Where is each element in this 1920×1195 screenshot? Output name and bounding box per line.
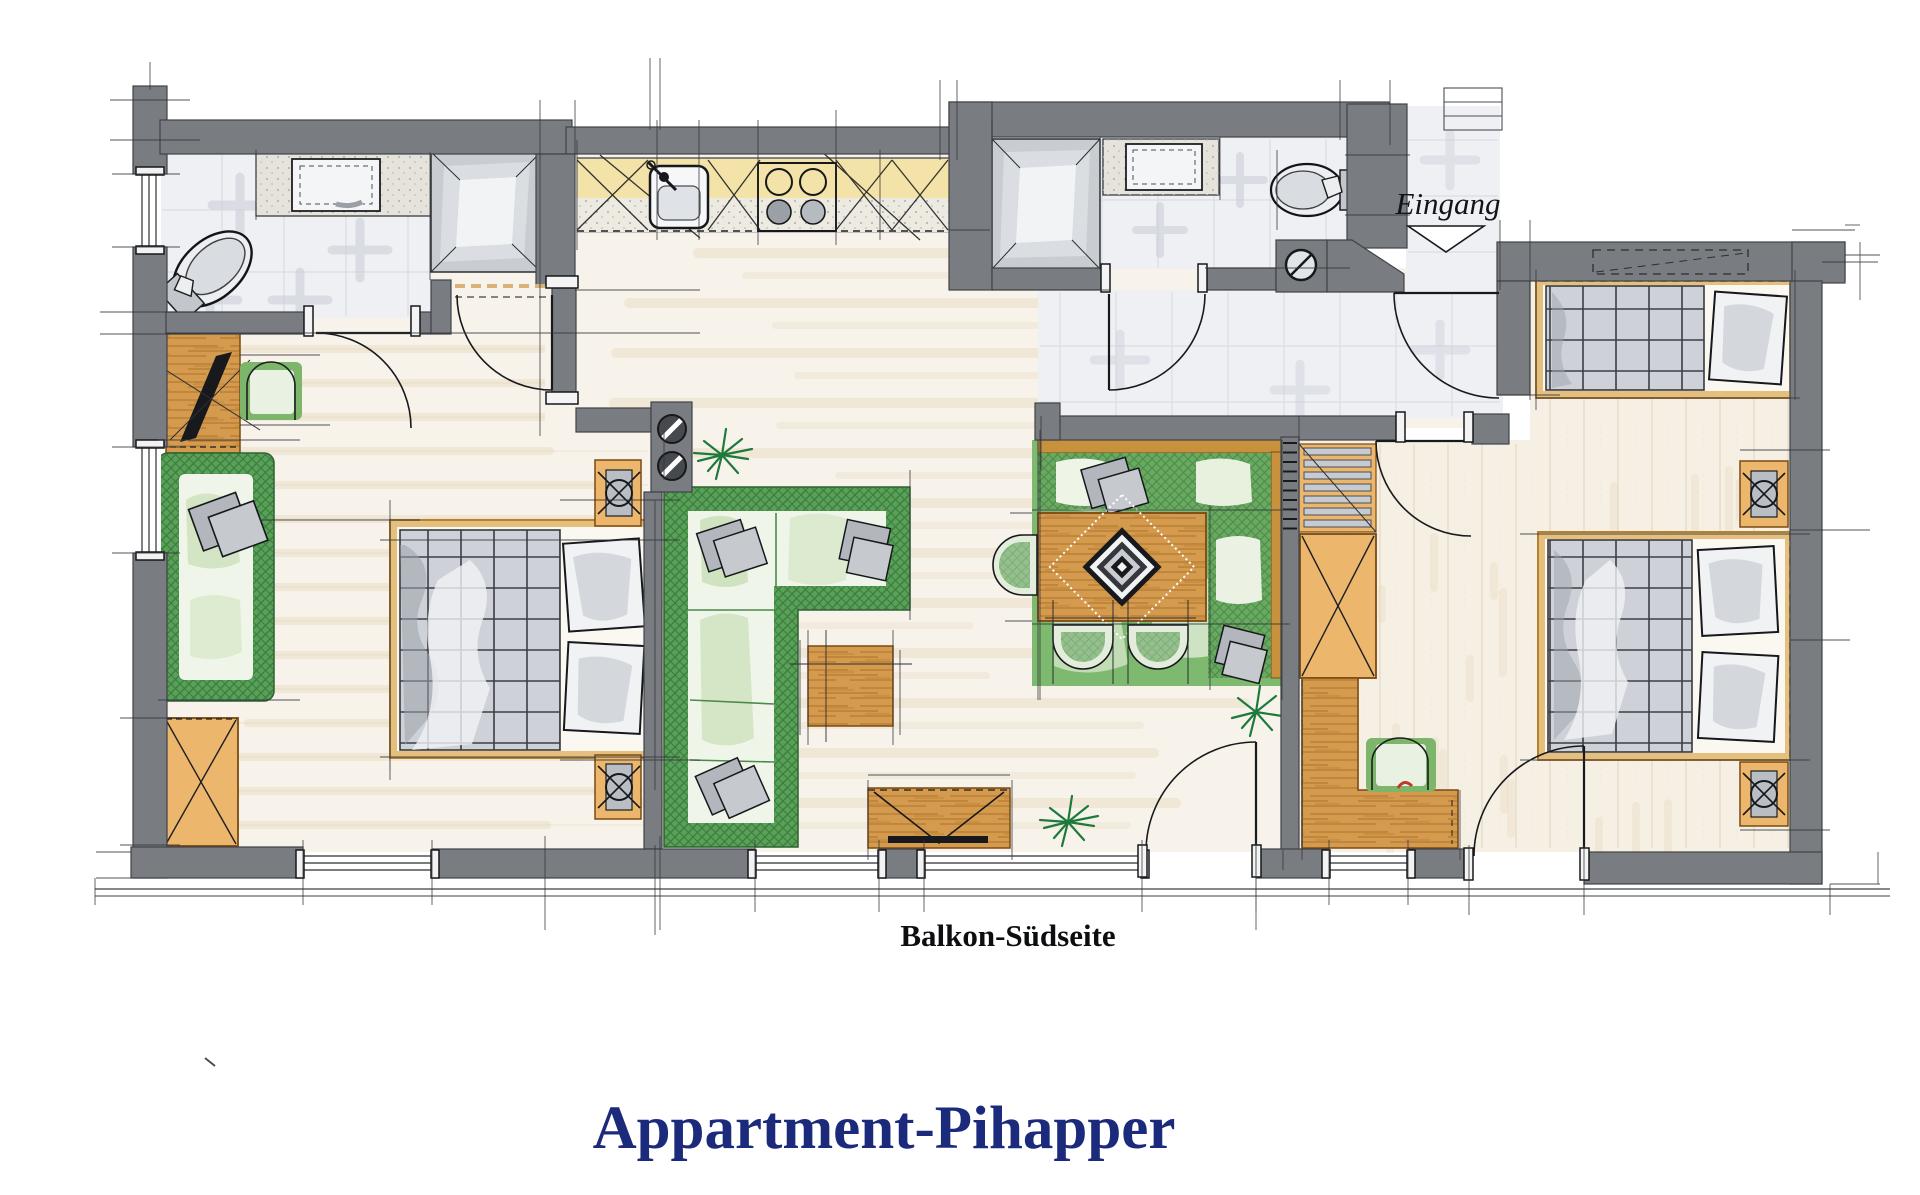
svg-text:Appartment-Pihapper: Appartment-Pihapper	[593, 1095, 1176, 1162]
svg-text:Balkon-Südseite: Balkon-Südseite	[900, 918, 1115, 953]
svg-text:Eingang: Eingang	[1394, 186, 1500, 221]
